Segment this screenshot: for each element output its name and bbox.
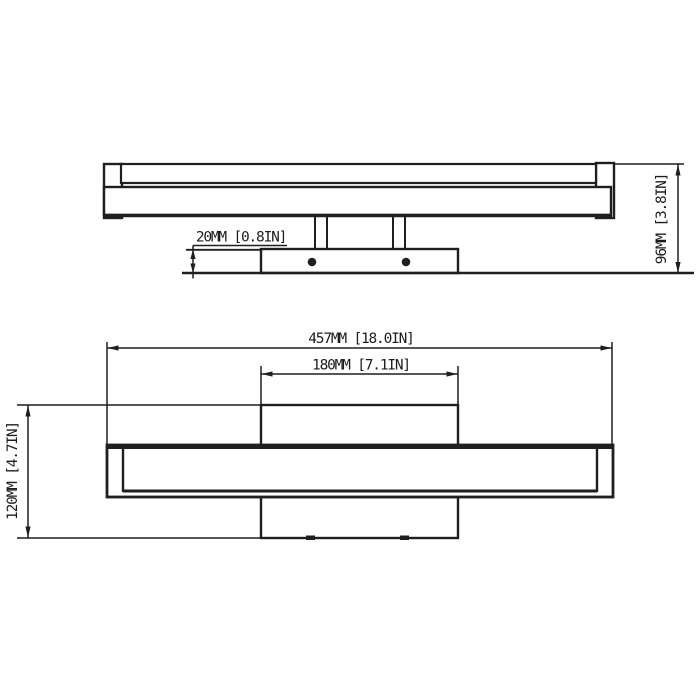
front-left-stem <box>315 213 327 250</box>
plan-backplate-upper <box>261 405 458 447</box>
technical-drawing: 20MM [0.8IN] 96MM [3.8IN] <box>0 0 700 700</box>
dimension-label-plate-thickness: 20MM [0.8IN] <box>196 230 286 246</box>
dimension-label-fixture-height: 96MM [3.8IN] <box>654 174 670 264</box>
arrowhead-left <box>108 345 119 350</box>
dimension-label-backplate-length: 180MM [7.1IN] <box>312 358 410 374</box>
arrowhead-left <box>262 371 273 376</box>
plan-view: 457MM [18.0IN] 180MM [7.1IN] 120MM [4.7I… <box>5 331 613 540</box>
arrowhead-up <box>190 250 195 260</box>
dimension-label-fixture-depth: 120MM [4.7IN] <box>5 422 21 520</box>
arrowhead-down <box>25 527 30 538</box>
arrowhead-up <box>25 406 30 417</box>
screw-hole-right <box>402 258 411 267</box>
front-mounting-plate <box>261 249 458 273</box>
front-top-housing-band <box>121 164 596 183</box>
plan-backplate-lower <box>261 497 458 538</box>
screw-hole-left <box>308 258 317 267</box>
arrowhead-right <box>447 371 458 376</box>
front-view: 20MM [0.8IN] 96MM [3.8IN] <box>103 163 694 279</box>
dimension-label-overall-length: 457MM [18.0IN] <box>308 331 413 347</box>
mounting-slot-left <box>306 536 315 541</box>
arrowhead-down <box>190 264 195 274</box>
arrowhead-down <box>675 262 680 273</box>
front-lamp-body <box>104 187 611 215</box>
drawing-page: 20MM [0.8IN] 96MM [3.8IN] <box>0 0 700 700</box>
arrowhead-up <box>675 165 680 176</box>
arrowhead-right <box>601 345 612 350</box>
mounting-slot-right <box>400 536 409 541</box>
plan-fixture-bar <box>107 445 613 497</box>
dimension-backplate-length: 180MM [7.1IN] <box>261 358 458 407</box>
dimension-fixture-height: 96MM [3.8IN] <box>613 164 684 273</box>
front-right-stem <box>393 213 405 250</box>
